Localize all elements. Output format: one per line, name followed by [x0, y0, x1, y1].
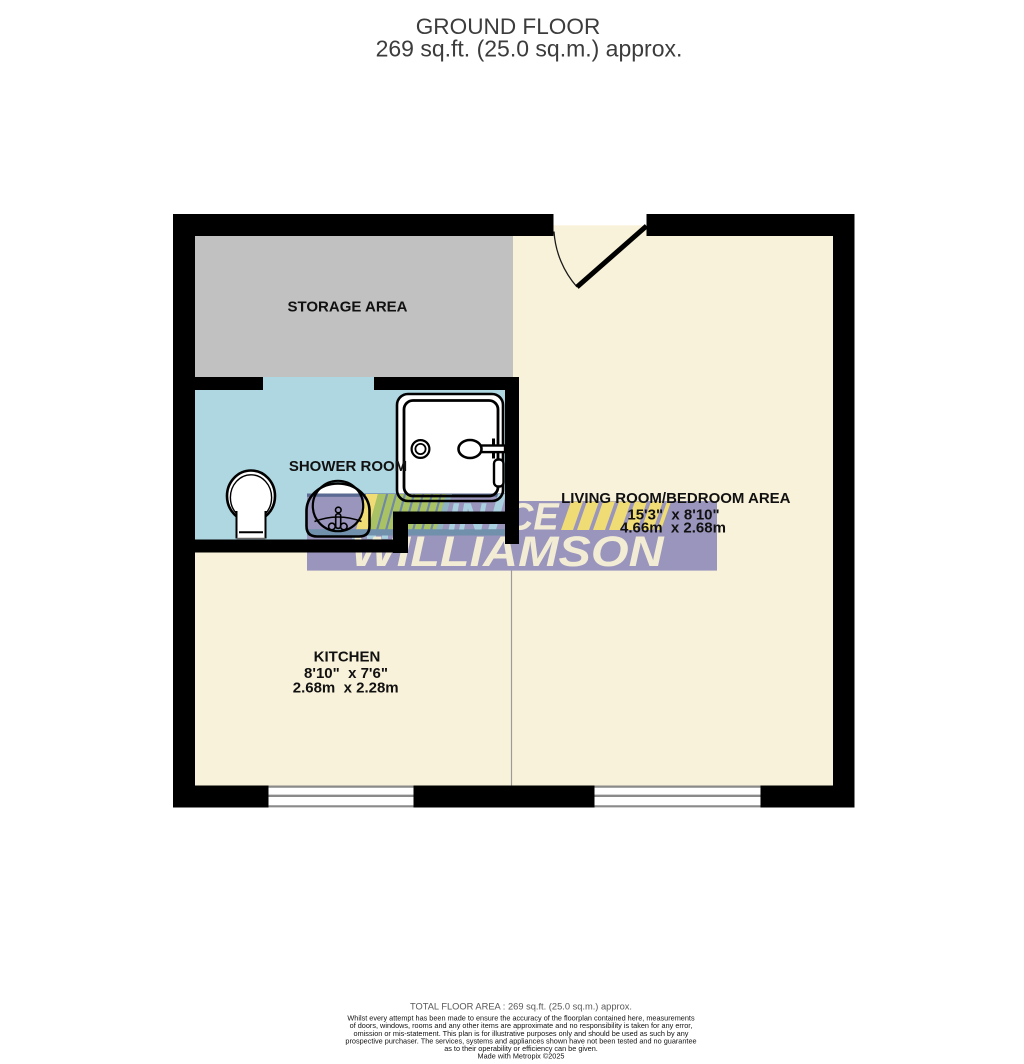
svg-text:Made with Metropix ©2025: Made with Metropix ©2025	[478, 1052, 565, 1061]
svg-text:STORAGE AREA: STORAGE AREA	[287, 299, 407, 316]
svg-text:269 sq.ft. (25.0 sq.m.) approx: 269 sq.ft. (25.0 sq.m.) approx.	[376, 36, 683, 62]
svg-text:2.68m x 2.28m: 2.68m x 2.28m	[293, 680, 399, 697]
svg-text:LIVING ROOM/BEDROOM AREA: LIVING ROOM/BEDROOM AREA	[561, 490, 791, 507]
svg-text:SHOWER ROOM: SHOWER ROOM	[289, 458, 407, 475]
svg-text:4.66m x 2.68m: 4.66m x 2.68m	[620, 520, 726, 537]
svg-text:TOTAL FLOOR AREA : 269 sq.ft.: TOTAL FLOOR AREA : 269 sq.ft. (25.0 sq.m…	[410, 1002, 632, 1012]
svg-text:KITCHEN: KITCHEN	[314, 649, 381, 666]
